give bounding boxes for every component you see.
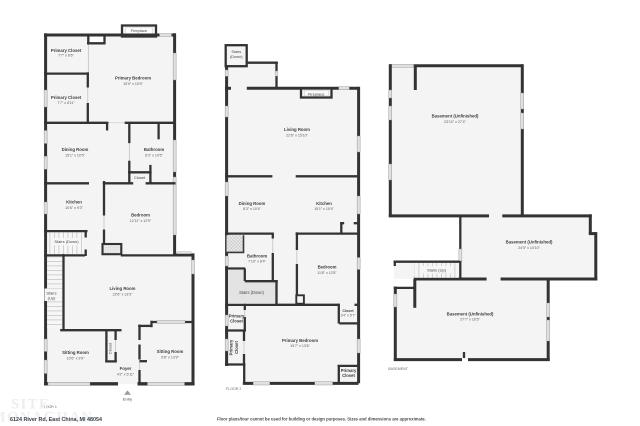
svg-text:Closet: Closet	[230, 319, 243, 324]
svg-text:Bedroom: Bedroom	[131, 213, 150, 218]
svg-text:Basement (Unfinished): Basement (Unfinished)	[506, 240, 553, 245]
svg-text:15'1" x 10'5": 15'1" x 10'5"	[65, 153, 85, 157]
svg-text:Bedroom: Bedroom	[318, 265, 337, 270]
svg-text:Kitchen: Kitchen	[66, 200, 82, 205]
svg-text:Closet: Closet	[234, 341, 239, 354]
svg-text:Living Room: Living Room	[109, 286, 135, 291]
svg-text:12'11" x 12'9": 12'11" x 12'9"	[130, 219, 152, 223]
svg-text:Fireplace: Fireplace	[131, 28, 148, 33]
svg-text:7'7" x 6'6": 7'7" x 6'6"	[58, 54, 74, 58]
svg-text:8'3" x 10'5": 8'3" x 10'5"	[145, 153, 163, 157]
svg-text:Dining Room: Dining Room	[239, 201, 266, 206]
svg-text:Sitting Room: Sitting Room	[157, 349, 184, 354]
svg-text:24'5" x 10'10": 24'5" x 10'10"	[518, 246, 540, 250]
svg-text:7'10" x 8'4": 7'10" x 8'4"	[248, 259, 266, 263]
svg-text:3'4" x 5'7": 3'4" x 5'7"	[341, 313, 357, 317]
svg-text:Primary: Primary	[229, 339, 234, 355]
svg-text:Foyer: Foyer	[120, 366, 132, 371]
svg-text:4'2" x 5'11": 4'2" x 5'11"	[117, 372, 135, 376]
svg-text:Stairs (Up): Stairs (Up)	[427, 268, 447, 273]
svg-text:(Up): (Up)	[48, 296, 56, 301]
svg-text:Stairs: Stairs	[231, 49, 241, 54]
svg-text:9'8" x 13'9": 9'8" x 13'9"	[161, 355, 179, 359]
svg-text:Basement (Unfinished): Basement (Unfinished)	[432, 114, 479, 119]
svg-text:6124 River Rd, East China, MI: 6124 River Rd, East China, MI 48054	[10, 417, 102, 423]
svg-text:Sitting Room: Sitting Room	[62, 350, 89, 355]
svg-text:10'6" x 9'9": 10'6" x 9'9"	[67, 356, 85, 360]
svg-text:22'6" x 13'3": 22'6" x 13'3"	[113, 292, 133, 296]
svg-text:Closet: Closet	[107, 342, 112, 354]
svg-text:Primary Closet: Primary Closet	[51, 48, 82, 53]
svg-text:Primary Closet: Primary Closet	[51, 95, 82, 100]
svg-text:Closet: Closet	[342, 373, 355, 378]
svg-text:Dining Room: Dining Room	[62, 147, 89, 152]
svg-text:Entry: Entry	[123, 397, 132, 402]
svg-text:Stairs (Down): Stairs (Down)	[239, 290, 264, 295]
svg-text:(Down): (Down)	[230, 54, 243, 59]
svg-text:15'1" x 10'4": 15'1" x 10'4"	[314, 207, 334, 211]
svg-text:Primary Bedroom: Primary Bedroom	[115, 76, 151, 81]
svg-text:Closet: Closet	[342, 309, 354, 313]
svg-text:22'6" x 15'10": 22'6" x 15'10"	[286, 133, 308, 137]
svg-text:FLOOR 2: FLOOR 2	[226, 387, 241, 391]
svg-text:Bathroom: Bathroom	[247, 253, 267, 258]
svg-text:27'7" x 16'5": 27'7" x 16'5"	[460, 318, 480, 322]
svg-text:Fireplace: Fireplace	[308, 91, 325, 96]
svg-text:15'9" x 15'9": 15'9" x 15'9"	[123, 82, 143, 86]
svg-text:19'7" x 13'6": 19'7" x 13'6"	[290, 344, 310, 348]
svg-text:10'6" x 9'3": 10'6" x 9'3"	[65, 206, 83, 210]
svg-text:Primary Bedroom: Primary Bedroom	[282, 338, 318, 343]
svg-text:Living Room: Living Room	[284, 127, 310, 132]
svg-text:7'7" x 8'11": 7'7" x 8'11"	[57, 101, 75, 105]
svg-text:Floor plans/tour cannot be use: Floor plans/tour cannot be used for buil…	[217, 416, 426, 421]
svg-text:23'10" x 27'4": 23'10" x 27'4"	[444, 120, 466, 124]
svg-text:Kitchen: Kitchen	[316, 201, 332, 206]
svg-text:Basement (Unfinished): Basement (Unfinished)	[447, 311, 494, 316]
svg-text:Stairs: Stairs	[46, 290, 56, 295]
svg-text:BASEMENT: BASEMENT	[388, 367, 409, 371]
svg-text:Stairs (Down): Stairs (Down)	[54, 239, 79, 244]
svg-text:11'8" x 12'5": 11'8" x 12'5"	[317, 271, 337, 275]
svg-text:Closet: Closet	[134, 175, 146, 180]
svg-text:Bathroom: Bathroom	[144, 147, 164, 152]
svg-text:8'3" x 10'4": 8'3" x 10'4"	[243, 207, 261, 211]
